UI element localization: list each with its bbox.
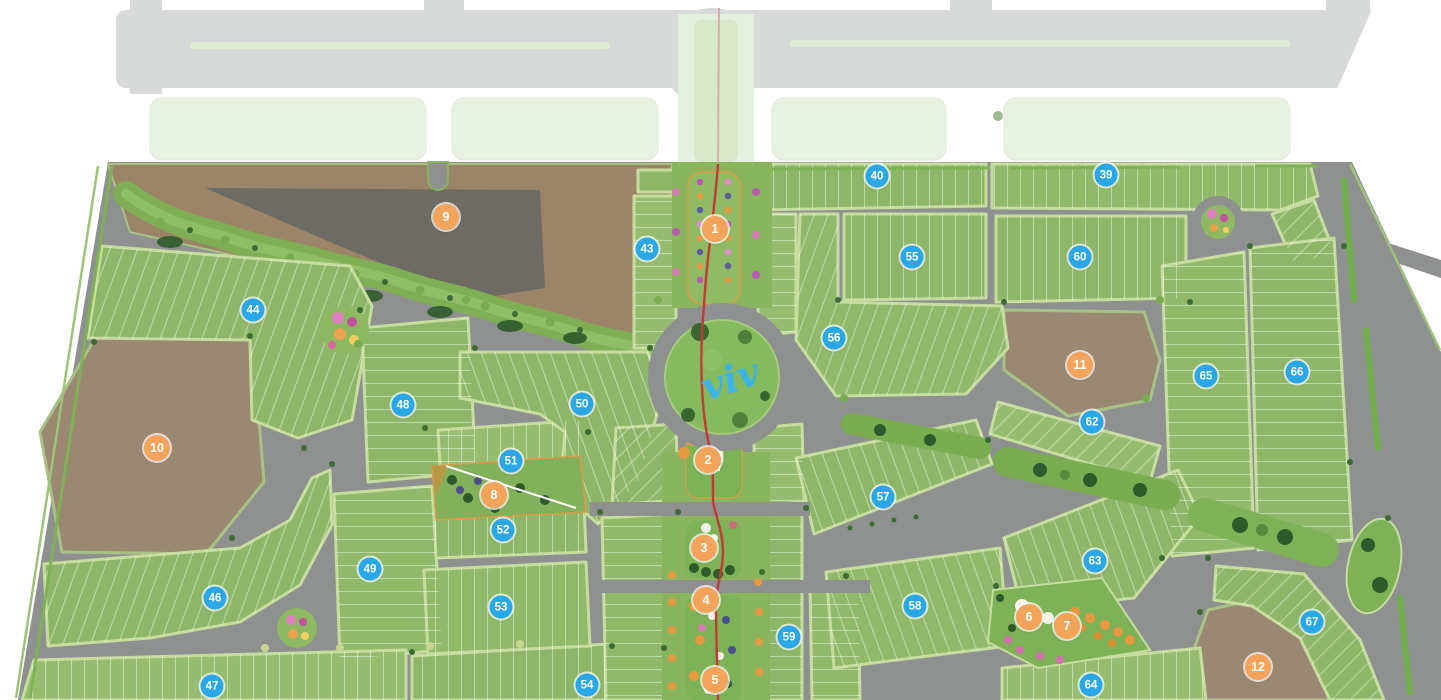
block-marker-40[interactable]: 40 — [866, 165, 889, 188]
block-marker-57[interactable]: 57 — [872, 486, 895, 509]
block-marker-67[interactable]: 67 — [1301, 611, 1324, 634]
amenity-marker-1[interactable]: 1 — [702, 216, 728, 242]
block-marker-54[interactable]: 54 — [576, 674, 599, 697]
amenity-marker-10[interactable]: 10 — [144, 435, 170, 461]
block-marker-39[interactable]: 39 — [1095, 164, 1118, 187]
block-marker-51[interactable]: 51 — [500, 450, 523, 473]
master-plan-map: viv 394043444647484950515253545556575859… — [0, 0, 1441, 700]
marker-layer: 3940434446474849505152535455565758596062… — [0, 0, 1441, 700]
block-marker-50[interactable]: 50 — [571, 393, 594, 416]
block-marker-60[interactable]: 60 — [1069, 246, 1092, 269]
amenity-marker-8[interactable]: 8 — [481, 482, 507, 508]
amenity-marker-9[interactable]: 9 — [433, 204, 459, 230]
block-marker-66[interactable]: 66 — [1286, 361, 1309, 384]
block-marker-58[interactable]: 58 — [904, 595, 927, 618]
block-marker-56[interactable]: 56 — [823, 327, 846, 350]
block-marker-43[interactable]: 43 — [636, 238, 659, 261]
amenity-marker-4[interactable]: 4 — [693, 587, 719, 613]
block-marker-63[interactable]: 63 — [1084, 550, 1107, 573]
amenity-marker-7[interactable]: 7 — [1054, 613, 1080, 639]
amenity-marker-11[interactable]: 11 — [1067, 352, 1093, 378]
block-marker-62[interactable]: 62 — [1081, 411, 1104, 434]
block-marker-53[interactable]: 53 — [490, 596, 513, 619]
amenity-marker-3[interactable]: 3 — [691, 535, 717, 561]
block-marker-52[interactable]: 52 — [492, 519, 515, 542]
amenity-marker-12[interactable]: 12 — [1245, 654, 1271, 680]
amenity-marker-2[interactable]: 2 — [695, 447, 721, 473]
block-marker-64[interactable]: 64 — [1080, 674, 1103, 697]
amenity-marker-6[interactable]: 6 — [1016, 604, 1042, 630]
block-marker-55[interactable]: 55 — [901, 246, 924, 269]
block-marker-46[interactable]: 46 — [204, 587, 227, 610]
block-marker-49[interactable]: 49 — [359, 558, 382, 581]
block-marker-47[interactable]: 47 — [201, 675, 224, 698]
block-marker-44[interactable]: 44 — [242, 299, 265, 322]
amenity-marker-5[interactable]: 5 — [702, 667, 728, 693]
block-marker-65[interactable]: 65 — [1195, 365, 1218, 388]
block-marker-59[interactable]: 59 — [778, 626, 801, 649]
block-marker-48[interactable]: 48 — [392, 394, 415, 417]
